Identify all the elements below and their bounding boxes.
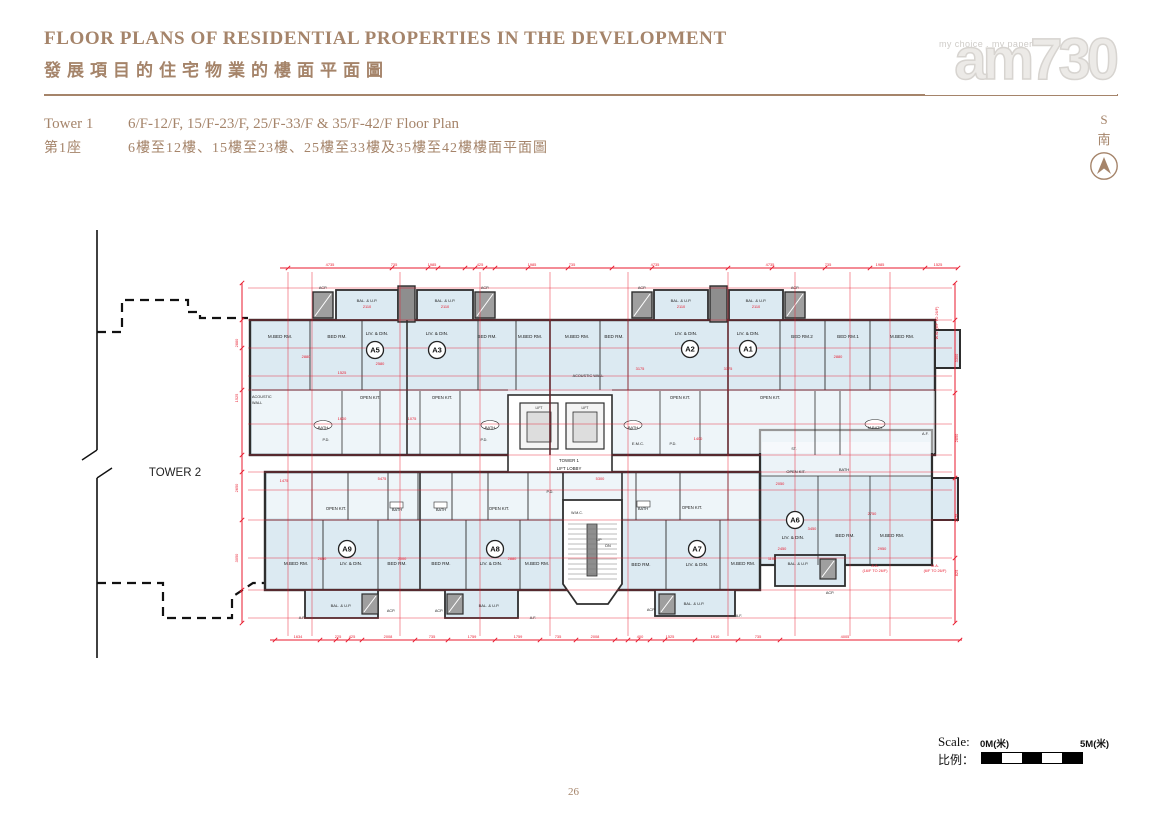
scale-end: 5M(米): [1080, 736, 1109, 750]
dimension-value: 3450: [808, 526, 817, 531]
room-label: ACP.: [647, 608, 655, 612]
room-label: UP: [596, 538, 602, 542]
room-label: BAL. & U.P.: [671, 298, 692, 303]
compass-letter: S: [1078, 112, 1130, 128]
dimension-value: 3050: [234, 553, 239, 562]
room-label: M.BED RM.: [284, 561, 308, 566]
room-label: BED RM.: [631, 562, 650, 567]
room-label: BATH: [392, 507, 402, 512]
dimension-value: 825: [954, 570, 959, 577]
room-label: LIFT: [582, 406, 589, 410]
room-label: BED RM.: [431, 561, 450, 566]
room-label: ACP.: [319, 286, 327, 290]
tower-label-en: Tower 1: [44, 116, 128, 133]
room-label: BATH: [318, 425, 328, 430]
room-label: LIV. & DIN.: [426, 331, 449, 336]
dimension-value: 1075: [408, 416, 417, 421]
dimension-value: 1525: [666, 634, 675, 639]
room-label: BAL. & U.P.: [479, 603, 500, 608]
dimension-value: 2110: [677, 304, 686, 309]
scale-start: 0M(米): [980, 736, 1009, 750]
dimension-value: 2008: [591, 634, 600, 639]
room-label: ST.: [791, 447, 796, 451]
room-label: BED RM.: [327, 334, 346, 339]
room-label: OPEN KIT.: [786, 469, 805, 474]
room-label: LIV. & DIN.: [366, 331, 389, 336]
room-label: M.BED RM.: [268, 334, 292, 339]
dimension-value: 1475: [280, 478, 289, 483]
compass-icon: [1089, 151, 1119, 181]
room-label: M.BED RM.: [880, 533, 904, 538]
room-label: OPEN KIT.: [760, 395, 780, 400]
room-label: M.BED RM.: [518, 334, 542, 339]
room-label: OPEN KIT.: [326, 506, 346, 511]
dimension-value: 735: [391, 262, 398, 267]
dimension-value: 2880: [234, 338, 239, 347]
dimension-value: 735: [429, 634, 436, 639]
page-title-en: FLOOR PLANS OF RESIDENTIAL PROPERTIES IN…: [44, 28, 727, 50]
unit-label: A7: [692, 545, 702, 554]
dimension-value: 2050: [776, 481, 785, 486]
room-label: M.BED RM.: [525, 561, 549, 566]
room-label: BAL. & U.P.: [746, 298, 767, 303]
tower-label-zh: 第1座: [44, 137, 128, 157]
room-label: TOWER 1: [559, 458, 579, 463]
room-label: BED RM.: [387, 561, 406, 566]
floor-plan: 4735735198542519857354735473573519851525…: [80, 228, 980, 663]
room-label: P.D.: [481, 438, 488, 442]
dimension-value: 2880: [508, 556, 517, 561]
room-label: E.M.C.: [632, 441, 644, 446]
room-label: WALL: [252, 401, 262, 405]
room-label: BED RM.1: [837, 334, 859, 339]
dimension-value: 4735: [326, 262, 335, 267]
room-label: LIV. & DIN.: [782, 535, 805, 540]
red-annotation: (16/F TO 26/F): [863, 569, 889, 573]
room-label: LIFT: [536, 406, 543, 410]
dimension-value: 1985: [528, 262, 537, 267]
dimension-value: 3300: [954, 353, 959, 362]
room-label: BATH: [628, 425, 638, 430]
dimension-value: 400: [637, 634, 644, 639]
room-label: M.BED RM.: [890, 334, 914, 339]
scale-label-en: Scale:: [938, 734, 970, 750]
room-label: OPEN KIT.: [489, 506, 509, 511]
room-label: ACP.: [435, 609, 443, 613]
dimension-value: 1100: [768, 556, 777, 561]
unit-label: A2: [685, 345, 695, 354]
floor-plan-svg: 4735735198542519857354735473573519851525…: [80, 228, 980, 658]
dimension-value: 4735: [651, 262, 660, 267]
room-label: BAL. & U.P.: [435, 298, 456, 303]
room-label: P.D.: [547, 490, 554, 494]
unit-label: A9: [342, 545, 352, 554]
dimension-value: 2450: [778, 546, 787, 551]
subheader-zh: 第1座6樓至12樓、15樓至23樓、25樓至33樓及35樓至42樓樓面平面圖: [44, 137, 548, 157]
dimension-value: 1985: [876, 262, 885, 267]
page-number: 26: [568, 786, 579, 798]
unit-label: A3: [432, 346, 442, 355]
floors-en: 6/F-12/F, 15/F-23/F, 25/F-33/F & 35/F-42…: [128, 116, 459, 132]
room-label: BAL. & U.P.: [684, 601, 705, 606]
room-label: TOWER 2: [149, 467, 201, 479]
room-label: M.BED RM.: [731, 561, 755, 566]
room-label: P.D.: [670, 442, 677, 446]
dimension-value: 1759: [468, 634, 477, 639]
room-label: BATH: [638, 506, 648, 511]
dimension-value: 2650: [318, 556, 327, 561]
dimension-value: 2575: [954, 514, 959, 523]
room-label: ACP.: [638, 286, 646, 290]
scale-label-zh: 比例：: [938, 751, 974, 768]
dimension-value: 735: [569, 262, 576, 267]
subheader-en: Tower 16/F-12/F, 15/F-23/F, 25/F-33/F & …: [44, 116, 459, 133]
unit-label: A8: [490, 545, 500, 554]
room-label: A.F.: [299, 616, 306, 620]
dimension-value: 2110: [441, 304, 450, 309]
red-annotation: A.A.: [871, 564, 878, 568]
room-label: BAL. & U.P.: [788, 561, 809, 566]
dimension-value: 425: [477, 262, 484, 267]
room-label: ACP.: [481, 286, 489, 290]
dimension-value: 1985: [428, 262, 437, 267]
red-annotation: (6/F TO 26/F): [924, 569, 948, 573]
room-label: M.BATH: [868, 425, 883, 430]
dimension-value: 3175: [636, 366, 645, 371]
room-label: OPEN KIT.: [670, 395, 690, 400]
dimension-value: 5300: [596, 476, 605, 481]
page-title-zh: 發展項目的住宅物業的樓面平面圖: [44, 56, 389, 81]
tower2-boundary: [82, 230, 265, 658]
room-label: LIV. & DIN.: [340, 561, 363, 566]
room-label: A.F.: [922, 432, 929, 436]
dimension-value: 1634: [294, 634, 303, 639]
unit-label: A6: [790, 516, 800, 525]
dimension-value: 2880: [302, 354, 311, 359]
room-label: ACP.: [791, 286, 799, 290]
room-label: A.F.: [530, 616, 537, 620]
unit-label: A5: [370, 346, 380, 355]
red-annotation: M.A.: [931, 564, 939, 568]
floors-zh: 6樓至12樓、15樓至23樓、25樓至33樓及35樓至42樓樓面平面圖: [128, 141, 548, 156]
dimension-value: 1759: [514, 634, 523, 639]
unit-label: A1: [743, 345, 753, 354]
room-label: OPEN KIT.: [360, 395, 380, 400]
room-label: DN: [605, 544, 611, 548]
dimension-value: 735: [825, 262, 832, 267]
dimension-value: 735: [755, 634, 762, 639]
room-label: A.F.: [736, 614, 743, 618]
dimension-value: 4735: [766, 262, 775, 267]
dimension-value: 3175: [724, 366, 733, 371]
compass-zh: 南: [1078, 129, 1130, 148]
room-label: BATH: [839, 467, 849, 472]
room-label: ACP.: [387, 609, 395, 613]
room-label: BAL. & U.P.: [331, 603, 352, 608]
dimension-value: 225: [335, 634, 342, 639]
room-label: ACOUSTIC WALL: [573, 374, 604, 378]
room-label: W.M.C.: [571, 511, 583, 515]
dimension-value: 2580: [376, 361, 385, 366]
red-annotation: W.W. (6/F TO 26/F): [935, 306, 939, 340]
room-label: ACP.: [826, 591, 834, 595]
room-label: BATH: [485, 425, 495, 430]
room-label: LIV. & DIN.: [737, 331, 760, 336]
dimension-value: 2750: [868, 511, 877, 516]
dimension-value: 1400: [694, 436, 703, 441]
dimension-value: 2008: [384, 634, 393, 639]
page: FLOOR PLANS OF RESIDENTIAL PROPERTIES IN…: [0, 0, 1162, 817]
room-label: M.BED RM.: [565, 334, 589, 339]
dimension-value: 735: [555, 634, 562, 639]
room-label: BAL. & U.P.: [357, 298, 378, 303]
dimension-value: 5475: [378, 476, 387, 481]
room-label: LIFT LOBBY: [557, 466, 582, 471]
dimension-value: 425: [349, 634, 356, 639]
room-label: ACOUSTIC: [252, 395, 272, 399]
dimension-value: 2110: [363, 304, 372, 309]
am730-wordmark: am730: [954, 31, 1115, 89]
dimension-value: 1525: [934, 262, 943, 267]
room-label: BED RM.2: [791, 334, 813, 339]
room-label: LIV. & DIN.: [480, 561, 503, 566]
room-label: LIV. & DIN.: [675, 331, 698, 336]
scale-bar: [981, 752, 1083, 764]
dimension-value: 2110: [752, 304, 761, 309]
room-label: BED RM.: [604, 334, 623, 339]
compass: S 南: [1078, 112, 1130, 181]
room-label: P.D.: [323, 438, 330, 442]
dimension-value: 4005: [841, 634, 850, 639]
am730-logo: my choice . my paper am730: [925, 31, 1117, 95]
room-label: BED RM.: [835, 533, 854, 538]
room-label: BED RM.: [477, 334, 496, 339]
dimension-value: 1910: [711, 634, 720, 639]
dimension-value: 1600: [338, 416, 347, 421]
dimension-value: 2950: [878, 546, 887, 551]
room-label: LIV. & DIN.: [686, 562, 709, 567]
dimension-value: 1525: [338, 370, 347, 375]
room-label: OPEN KIT.: [432, 395, 452, 400]
dimension-value: 2880: [834, 354, 843, 359]
dimension-value: 2850: [954, 433, 959, 442]
room-label: OPEN KIT.: [682, 505, 702, 510]
dimension-value: 2650: [234, 483, 239, 492]
dimension-value: 1525: [234, 394, 239, 403]
room-label: BATH: [436, 507, 446, 512]
